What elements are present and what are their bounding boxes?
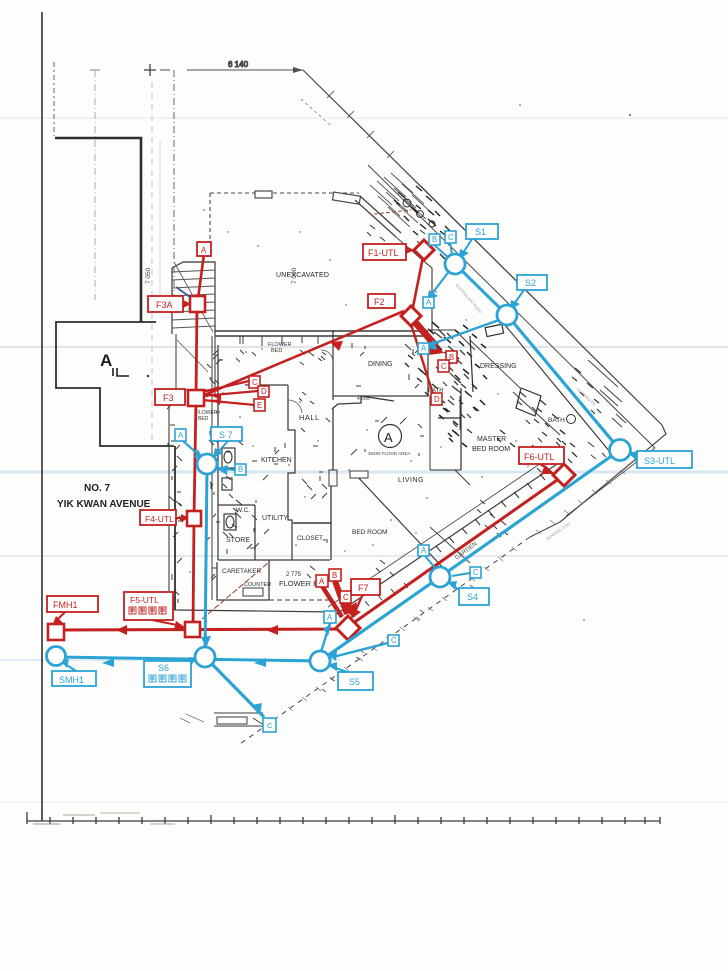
svg-text:A: A [178, 431, 184, 440]
svg-text:LIVING: LIVING [398, 477, 424, 484]
svg-text:7 050: 7 050 [145, 267, 152, 284]
svg-text:UTILITY: UTILITY [262, 515, 288, 522]
svg-text:F4-UTL: F4-UTL [145, 514, 174, 524]
svg-text:S 7: S 7 [219, 430, 233, 440]
svg-text:S1: S1 [475, 227, 486, 237]
svg-text:UNEXCAVATED: UNEXCAVATED [276, 272, 329, 279]
svg-text:6 140: 6 140 [228, 60, 249, 69]
svg-text:S5: S5 [349, 677, 360, 687]
svg-text:BED: BED [271, 348, 282, 354]
svg-text:B: B [449, 353, 454, 362]
svg-text:A: A [327, 613, 333, 622]
svg-text:A: A [319, 577, 325, 586]
svg-text:D: D [261, 387, 267, 396]
svg-text:S2: S2 [525, 278, 536, 288]
svg-text:GENERAL EDG: GENERAL EDG [545, 521, 571, 542]
svg-text:B: B [332, 571, 337, 580]
svg-text:F7: F7 [358, 583, 369, 593]
svg-text:DINING: DINING [368, 361, 393, 368]
svg-text:CLOSET: CLOSET [297, 535, 323, 542]
svg-text:C: C [252, 378, 258, 387]
svg-text:KITCHEN: KITCHEN [261, 457, 292, 464]
svg-text:7 000: 7 000 [291, 267, 298, 284]
svg-text:4 565: 4 565 [357, 396, 370, 402]
svg-text:A: A [426, 298, 432, 307]
svg-text:C: C [473, 568, 479, 577]
svg-text:C: C [391, 636, 397, 645]
svg-text:SMH1: SMH1 [59, 675, 84, 685]
svg-text:S3-UTL: S3-UTL [644, 456, 675, 466]
svg-text:C: C [343, 593, 349, 602]
svg-text:STORE: STORE [226, 537, 250, 544]
svg-text:B: B [238, 465, 243, 474]
svg-text:BED ROOM: BED ROOM [472, 446, 510, 453]
svg-text:C: C [267, 721, 273, 730]
svg-text:BED ROOM: BED ROOM [352, 529, 387, 536]
svg-text:COUNTER: COUNTER [244, 582, 271, 588]
svg-text:CARETAKER: CARETAKER [222, 568, 262, 575]
svg-text:SLOPING RD: SLOPING RD [575, 387, 597, 407]
svg-text:C: C [448, 233, 454, 242]
svg-text:S4: S4 [467, 592, 478, 602]
svg-text:35480 FLOOR AREA: 35480 FLOOR AREA [368, 451, 411, 456]
svg-text:A: A [201, 246, 207, 255]
svg-text:W.C.: W.C. [236, 507, 250, 514]
svg-text:E: E [257, 401, 262, 410]
svg-text:BED: BED [198, 416, 209, 422]
svg-text:S6: S6 [158, 663, 169, 673]
svg-text:A: A [100, 351, 112, 370]
svg-text:FMH1: FMH1 [53, 600, 78, 610]
svg-text:NO. 7: NO. 7 [84, 483, 111, 494]
svg-text:MASTER: MASTER [477, 436, 506, 443]
svg-text:B: B [432, 235, 437, 244]
svg-text:A: A [384, 430, 393, 445]
svg-text:F3A: F3A [156, 300, 173, 310]
svg-text:D: D [434, 395, 440, 404]
svg-text:A: A [421, 546, 427, 555]
svg-text:A: A [421, 344, 427, 353]
svg-text:F2: F2 [374, 297, 385, 307]
svg-text:HALL: HALL [299, 413, 320, 422]
svg-text:2 775: 2 775 [286, 572, 302, 578]
svg-text:DRESSING: DRESSING [480, 363, 517, 370]
svg-text:F6-UTL: F6-UTL [524, 452, 555, 462]
svg-text:F5-UTL: F5-UTL [130, 595, 159, 605]
svg-text:YIK KWAN AVENUE: YIK KWAN AVENUE [57, 499, 151, 510]
svg-text:F1-UTL: F1-UTL [368, 248, 399, 258]
svg-text:F3: F3 [163, 393, 174, 403]
svg-text:C: C [441, 362, 447, 371]
